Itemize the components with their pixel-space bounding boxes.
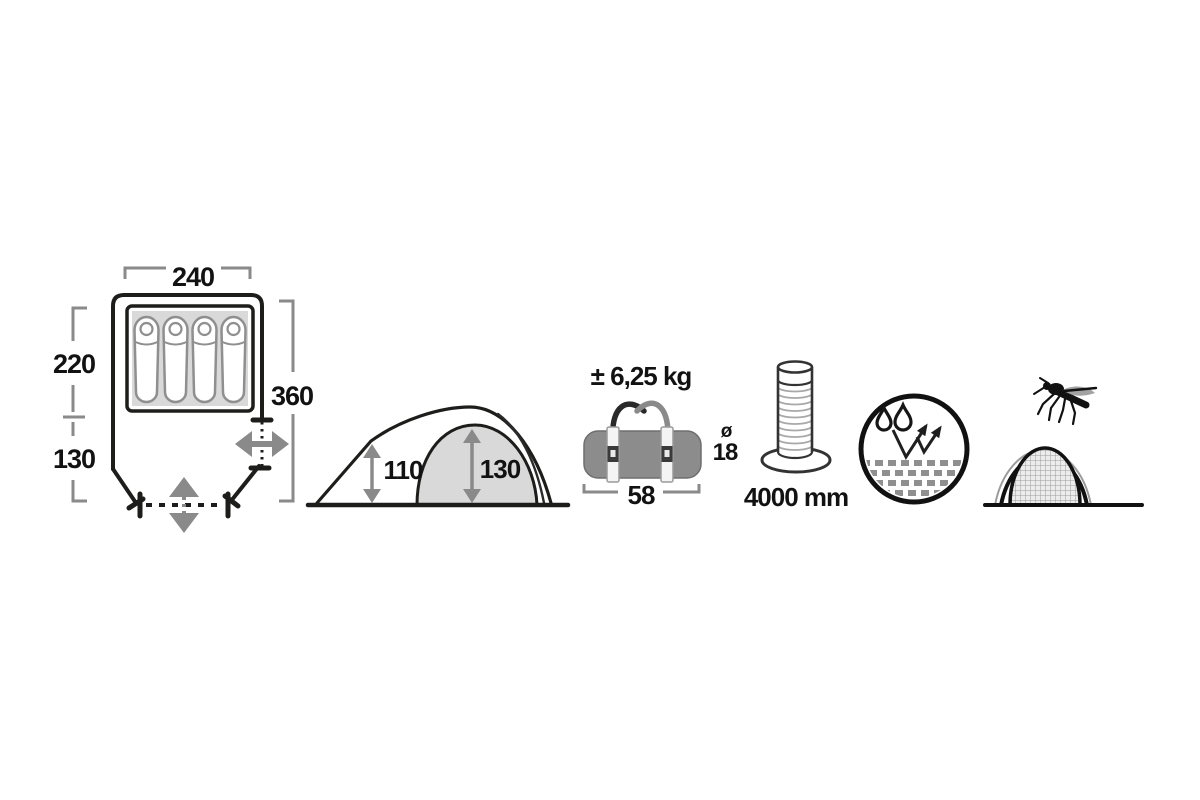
pack-length-label: 58: [628, 480, 655, 510]
floorplan-width-dimension: 240: [125, 262, 250, 292]
tent-wall-right-slope: [231, 466, 259, 501]
carry-bag-icon: ± 6,25 kg ø 18 58: [584, 361, 738, 510]
front-door-opening: [140, 477, 228, 533]
bag-strap-left: [607, 427, 619, 482]
water-column-label: 4000 mm: [744, 482, 848, 512]
mosquito-icon: [1034, 378, 1096, 424]
inner-length-bracket-top: [73, 308, 87, 341]
floorplan-total-dimension: 360: [271, 301, 313, 501]
peak-height-label: 130: [480, 454, 521, 484]
sleeping-bag-icon: [222, 317, 246, 402]
vestibule-height-arrow-icon: [363, 444, 381, 503]
dimension-mid-tick: [63, 385, 85, 436]
pack-weight-label: ± 6,25 kg: [591, 361, 692, 391]
floorplan-left-dimensions: 220 130: [53, 308, 95, 501]
dome-mesh-panel: [1010, 448, 1080, 505]
side-door-opening: [235, 420, 289, 468]
sleeping-bag-icon: [164, 317, 188, 402]
tent-wall-left-slope: [113, 469, 136, 503]
pack-diameter-label: 18: [713, 439, 738, 466]
bag-strap-right: [661, 427, 673, 482]
diagram-canvas: 240: [0, 0, 1200, 800]
vestibule-height-label: 110: [384, 455, 423, 485]
water-repellent-icon: [856, 396, 967, 502]
total-length-bracket-top: [279, 301, 293, 372]
bag-body: [584, 431, 701, 478]
total-length-bracket-bottom: [279, 414, 293, 501]
mosquito-net-icon: [985, 378, 1142, 505]
water-column-icon: 4000 mm: [744, 362, 848, 513]
vestibule-length-label: 130: [53, 444, 95, 474]
side-door-arrow-icon: [235, 431, 289, 457]
tent-side-view-icon: 110 130: [308, 407, 568, 505]
sleeping-bag-icon: [135, 317, 159, 402]
inner-length-label: 220: [53, 349, 95, 379]
floorplan-width-label: 240: [172, 262, 214, 292]
water-tube: [778, 362, 812, 459]
tent-floor-plan-icon: 240: [53, 262, 313, 533]
vestibule-bracket-bottom: [73, 480, 87, 501]
waterproof-circle-border: [861, 396, 967, 502]
sleeping-bag-icon: [193, 317, 217, 402]
tent-spec-diagram: 240: [0, 0, 1200, 800]
total-length-label: 360: [271, 381, 313, 411]
